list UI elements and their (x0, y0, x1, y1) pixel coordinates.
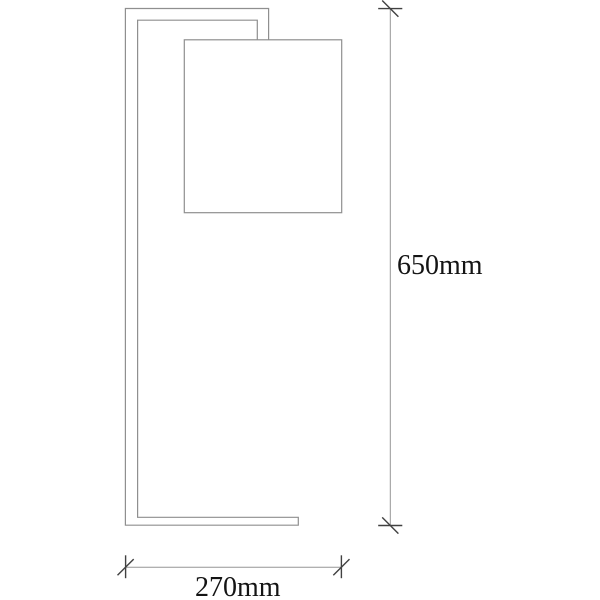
svg-text:650mm: 650mm (397, 250, 483, 281)
svg-text:270mm: 270mm (195, 572, 281, 600)
